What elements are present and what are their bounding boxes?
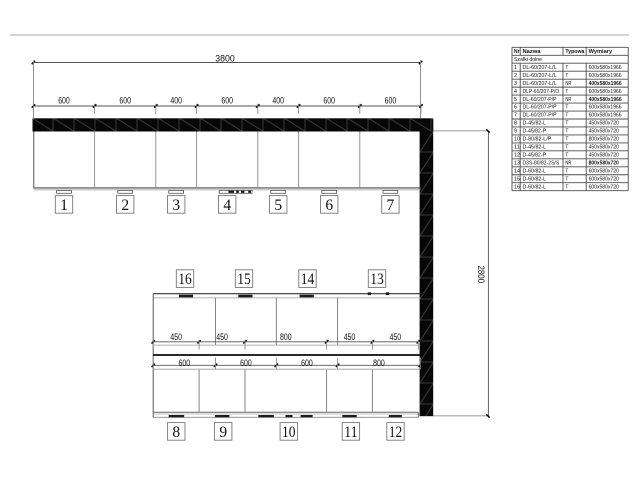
svg-text:600x580x720: 600x580x720	[589, 184, 620, 190]
svg-text:2800: 2800	[476, 266, 486, 284]
svg-text:800x580x720: 800x580x720	[589, 160, 620, 166]
svg-text:600: 600	[301, 358, 313, 369]
svg-text:T: T	[565, 153, 568, 159]
svg-text:600x580x1966: 600x580x1966	[589, 105, 623, 111]
svg-text:14: 14	[514, 168, 521, 174]
svg-text:600x580x1966: 600x580x1966	[589, 89, 623, 95]
svg-text:600: 600	[240, 358, 252, 369]
svg-text:D-60/82-L: D-60/82-L	[523, 168, 547, 174]
svg-text:8: 8	[172, 424, 180, 441]
svg-text:Wymiary: Wymiary	[589, 49, 613, 55]
svg-text:DL-60/207-P/P: DL-60/207-P/P	[523, 97, 557, 103]
svg-text:NR: NR	[565, 97, 571, 103]
svg-text:D-60/82-L: D-60/82-L	[523, 184, 547, 190]
svg-text:7: 7	[514, 113, 517, 119]
svg-text:DLP-60/207-P/O: DLP-60/207-P/O	[523, 89, 560, 95]
svg-text:T: T	[565, 73, 568, 79]
svg-text:D-45/82-P: D-45/82-P	[523, 153, 547, 159]
svg-text:T: T	[565, 184, 568, 190]
svg-text:400: 400	[170, 96, 182, 107]
svg-text:600x580x720: 600x580x720	[589, 168, 620, 174]
svg-text:13: 13	[514, 160, 521, 166]
svg-text:DL-60/207-P/P: DL-60/207-P/P	[523, 105, 557, 111]
svg-text:600x580x720: 600x580x720	[589, 176, 620, 182]
svg-text:Nr: Nr	[514, 49, 520, 55]
svg-text:11: 11	[514, 145, 520, 151]
svg-text:DL-60/207-L/L: DL-60/207-L/L	[523, 65, 558, 71]
svg-text:5: 5	[274, 197, 282, 214]
svg-text:600: 600	[58, 96, 70, 107]
svg-text:3: 3	[172, 197, 180, 214]
svg-text:12: 12	[514, 153, 520, 159]
svg-text:D-45/82-L: D-45/82-L	[523, 145, 547, 151]
svg-text:T: T	[565, 121, 568, 127]
svg-text:6: 6	[325, 197, 333, 214]
svg-text:2: 2	[121, 197, 129, 214]
svg-text:16: 16	[514, 184, 521, 190]
svg-text:600x580x1966: 600x580x1966	[589, 73, 623, 79]
svg-text:T: T	[565, 65, 568, 71]
svg-text:D-80/82-L/P: D-80/82-L/P	[523, 137, 552, 143]
svg-text:Nazwa: Nazwa	[523, 49, 542, 55]
svg-text:3800: 3800	[215, 54, 235, 65]
svg-text:T: T	[565, 145, 568, 151]
svg-text:400x580x1966: 400x580x1966	[589, 81, 623, 87]
svg-text:600: 600	[179, 358, 191, 369]
svg-text:T: T	[565, 176, 568, 182]
svg-text:D-45/82-P: D-45/82-P	[523, 129, 547, 135]
svg-text:12: 12	[389, 424, 403, 441]
svg-text:800: 800	[280, 332, 292, 343]
svg-text:10: 10	[282, 424, 296, 441]
svg-text:450x580x720: 450x580x720	[589, 153, 620, 159]
svg-text:600: 600	[221, 96, 233, 107]
svg-text:13: 13	[370, 271, 384, 288]
svg-text:T: T	[565, 113, 568, 119]
svg-text:600: 600	[119, 96, 131, 107]
svg-text:450: 450	[344, 332, 356, 343]
svg-text:D-60/82-L: D-60/82-L	[523, 176, 547, 182]
svg-text:7: 7	[387, 197, 395, 214]
svg-text:DL-60/207-L/L: DL-60/207-L/L	[523, 81, 558, 87]
svg-text:450: 450	[390, 332, 402, 343]
svg-text:D3S-80/82-2S/S: D3S-80/82-2S/S	[523, 160, 560, 166]
svg-text:450x580x720: 450x580x720	[589, 145, 620, 151]
svg-text:T: T	[565, 137, 568, 143]
svg-text:450: 450	[216, 332, 228, 343]
svg-text:450x580x720: 450x580x720	[589, 129, 620, 135]
svg-text:NR: NR	[565, 81, 571, 87]
svg-text:T: T	[565, 105, 568, 111]
svg-text:800x580x720: 800x580x720	[589, 137, 620, 143]
svg-text:T: T	[565, 89, 568, 95]
svg-text:Szafki dolne: Szafki dolne	[514, 57, 543, 63]
svg-text:9: 9	[219, 424, 227, 441]
svg-text:4: 4	[223, 197, 231, 214]
svg-text:Typowa: Typowa	[565, 49, 585, 55]
svg-text:600x580x1966: 600x580x1966	[589, 113, 623, 119]
svg-text:600: 600	[385, 96, 397, 107]
svg-text:T: T	[565, 168, 568, 174]
svg-text:15: 15	[514, 176, 521, 182]
svg-text:450: 450	[170, 332, 182, 343]
svg-text:600: 600	[323, 96, 335, 107]
svg-text:10: 10	[514, 137, 521, 143]
svg-text:DL-60/207-L/L: DL-60/207-L/L	[523, 73, 558, 79]
svg-text:NR: NR	[565, 160, 571, 166]
svg-text:D-45/82-L: D-45/82-L	[523, 121, 547, 127]
svg-text:16: 16	[178, 271, 192, 288]
svg-text:1: 1	[60, 197, 68, 214]
svg-text:800: 800	[373, 358, 385, 369]
svg-text:2: 2	[514, 73, 517, 79]
svg-text:DL-60/207-P/P: DL-60/207-P/P	[523, 113, 557, 119]
svg-text:14: 14	[301, 271, 315, 288]
svg-text:9: 9	[514, 129, 517, 135]
svg-text:600x580x1966: 600x580x1966	[589, 65, 623, 71]
svg-text:11: 11	[344, 424, 358, 441]
svg-text:400: 400	[272, 96, 284, 107]
svg-text:400x580x1966: 400x580x1966	[589, 97, 623, 103]
svg-text:T: T	[565, 129, 568, 135]
svg-text:15: 15	[237, 271, 251, 288]
svg-text:1: 1	[514, 65, 517, 71]
svg-text:450x580x720: 450x580x720	[589, 121, 620, 127]
